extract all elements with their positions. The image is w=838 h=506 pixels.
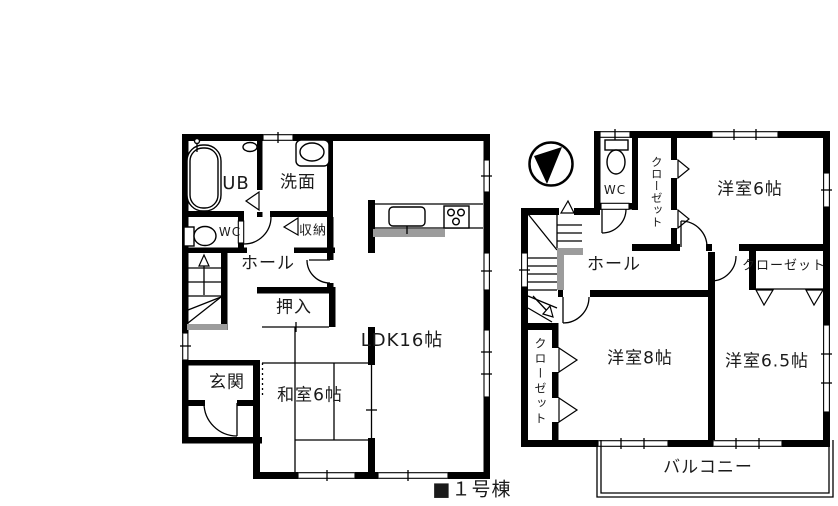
washbasin-icon	[296, 140, 329, 166]
room-label-hall-2f: ホール	[587, 257, 641, 274]
room-label-wc-1f: WC	[219, 226, 241, 238]
closet-door-icon	[559, 398, 577, 422]
kitchen-sink-icon	[389, 207, 425, 226]
stairs-up-arrow-icon	[561, 201, 574, 213]
closet-door-icon	[559, 348, 577, 372]
room-label-genkan: 玄関	[209, 375, 245, 392]
room-label-closet-north: クローゼット	[650, 156, 662, 228]
room-label-senmen: 洗面	[280, 175, 316, 192]
room-label-closet-east: クローゼット	[742, 260, 826, 273]
room-label-wc-2f: WC	[604, 184, 626, 196]
stairs-up-arrow-icon	[199, 255, 209, 266]
storage-door-icon	[284, 218, 298, 235]
ub-door-icon	[246, 192, 259, 210]
closet-door-icon	[678, 160, 689, 178]
room-label-ldk: LDK16帖	[361, 332, 444, 350]
room-label-hall-1f: ホール	[241, 256, 295, 273]
room-label-balcony: バルコニー	[663, 460, 753, 477]
closet-door-icon	[678, 210, 689, 228]
room-label-washitsu: 和室6帖	[277, 388, 343, 405]
toilet-icon-1f	[184, 227, 216, 247]
room-label-closet-west: クローゼット	[534, 337, 546, 427]
building-caption: ■１号棟	[433, 481, 512, 500]
stairs-2f	[528, 201, 583, 322]
room-label-bedroom8: 洋室8帖	[607, 351, 673, 368]
floorplan-page: UB 洗面 WC 収納 ホール 押入 和室6帖 LDK16帖 玄関 WC クロー…	[0, 0, 838, 506]
room-label-bedroom6: 洋室6帖	[717, 182, 783, 199]
kitchen-counter-icon	[373, 204, 483, 237]
room-label-oshiire: 押入	[276, 300, 312, 317]
compass-icon	[530, 143, 573, 186]
floorplan-drawing	[0, 0, 838, 506]
toilet-icon-2f	[605, 140, 628, 174]
room-label-bedroom65: 洋室6.5帖	[725, 354, 809, 371]
room-label-shuno: 収納	[299, 225, 327, 238]
closet-door-icon	[806, 290, 823, 305]
room-label-ub: UB	[222, 175, 250, 193]
closet-door-icon	[756, 290, 773, 305]
